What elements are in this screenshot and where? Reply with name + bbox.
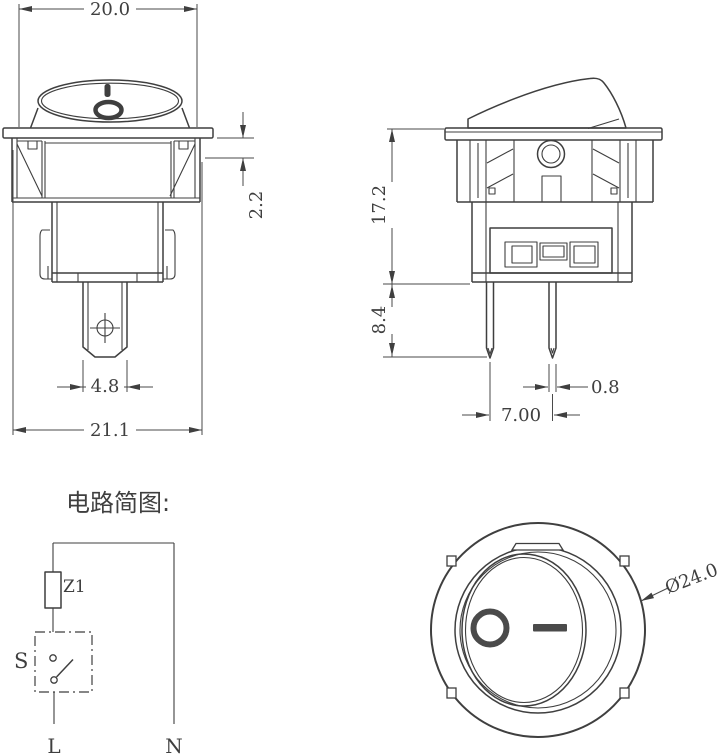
top-notch [512, 544, 563, 551]
dimension-pin-spacing: 7.00 [462, 362, 580, 426]
switch-box [35, 632, 92, 692]
circuit-diagram: 电路简图: Z1 S L N [14, 489, 183, 754]
dimension-body-height: 17.2 [369, 129, 470, 284]
switch-body [12, 138, 200, 202]
terminal-blade [83, 282, 127, 357]
switch-contacts [50, 655, 73, 683]
side-flange [445, 128, 662, 140]
rocker-switch-technical-drawing: 20.0 2.2 4.8 21.1 [0, 0, 720, 754]
dimension-top-width: 20.0 [19, 0, 197, 127]
on-bar-icon [105, 84, 111, 97]
dim-top-width-label: 20.0 [90, 0, 130, 20]
component-z1-label: Z1 [63, 577, 86, 597]
side-lower-housing [472, 202, 632, 282]
switch-label: S [14, 649, 28, 673]
on-symbol-icon [533, 624, 567, 632]
dimension-diameter: Ø24.0 [641, 559, 720, 601]
off-symbol-icon [474, 612, 507, 645]
mounting-flange [3, 128, 213, 138]
live-terminal-label: L [47, 734, 60, 754]
rocker-knob [31, 80, 190, 128]
side-body [457, 140, 653, 202]
rocker-button [462, 554, 586, 706]
dim-body-height-label: 17.2 [369, 185, 390, 225]
rocker-actuator [468, 78, 626, 128]
dimension-flange-clip: 2.2 [205, 112, 267, 219]
dim-overall-width-label: 21.1 [90, 420, 130, 441]
dim-pin-length-label: 8.4 [369, 306, 390, 335]
neutral-terminal-label: N [165, 734, 183, 754]
dimension-pin-thickness: 0.8 [523, 364, 620, 398]
side-view: 17.2 8.4 0.8 7.00 [369, 78, 662, 426]
connector-pins [487, 282, 557, 358]
circuit-title: 电路简图: [66, 489, 170, 517]
dimension-terminal-width: 4.8 [57, 360, 153, 397]
dim-pin-thickness-label: 0.8 [591, 377, 620, 398]
circuit-wires [53, 543, 174, 724]
off-ring-icon [96, 102, 122, 118]
component-z1 [45, 572, 61, 608]
dimension-pin-length: 8.4 [369, 284, 487, 357]
front-view: 20.0 2.2 4.8 21.1 [3, 0, 267, 441]
dim-diameter-label: Ø24.0 [662, 559, 720, 598]
dim-flange-clip-label: 2.2 [246, 191, 267, 220]
face-view: Ø24.0 [431, 523, 720, 737]
dim-pin-spacing-label: 7.00 [501, 405, 541, 426]
lower-housing [40, 202, 175, 282]
dim-terminal-width-label: 4.8 [91, 376, 120, 397]
